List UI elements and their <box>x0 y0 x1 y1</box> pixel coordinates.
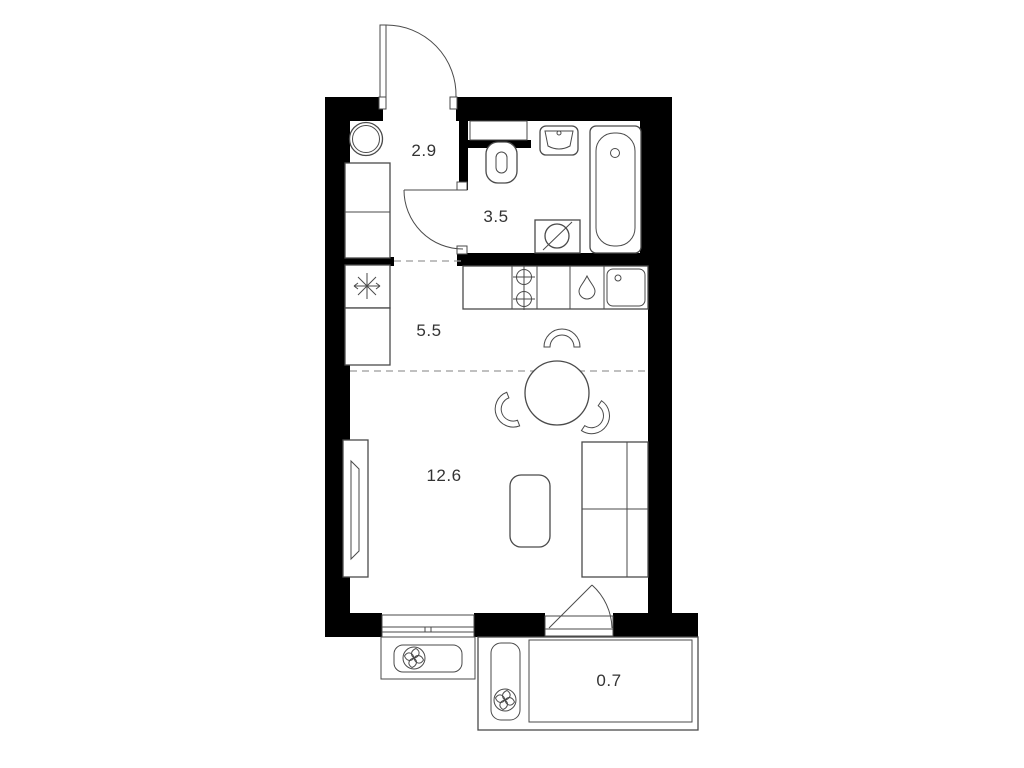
kitchen-counter <box>463 266 648 310</box>
bathtub <box>590 126 641 253</box>
bathroom-door <box>404 190 463 249</box>
ac-basket-left <box>381 637 475 679</box>
boiler-icon <box>350 123 383 156</box>
balcony-door <box>545 585 613 636</box>
refrigerator <box>345 265 390 308</box>
hallway-cabinet <box>345 163 390 258</box>
hallway-area-label: 2.9 <box>411 141 436 161</box>
bathroom-sink <box>540 126 578 155</box>
entrance-door <box>380 25 456 97</box>
floor-plan: 2.9 3.5 5.5 12.6 0.7 <box>0 0 1024 768</box>
washing-machine <box>535 220 580 253</box>
bathroom-area-label: 3.5 <box>483 207 508 227</box>
living-room-area-label: 12.6 <box>426 466 461 486</box>
balcony-area-label: 0.7 <box>596 671 621 691</box>
toilet <box>486 142 517 183</box>
kitchen-sink <box>607 269 645 306</box>
kitchen-area-label: 5.5 <box>416 321 441 341</box>
dining-table <box>490 329 617 441</box>
chair <box>544 329 580 347</box>
sofa <box>582 442 648 577</box>
chair <box>581 401 616 441</box>
chair <box>490 392 520 432</box>
wardrobe <box>343 440 368 577</box>
door-jambs <box>379 97 467 254</box>
kitchen-tall-cabinet <box>345 308 390 365</box>
window <box>382 615 474 637</box>
coffee-table <box>510 475 550 547</box>
balcony <box>478 637 698 730</box>
floor-plan-drawing <box>0 0 1024 768</box>
vent-duct <box>470 121 527 140</box>
